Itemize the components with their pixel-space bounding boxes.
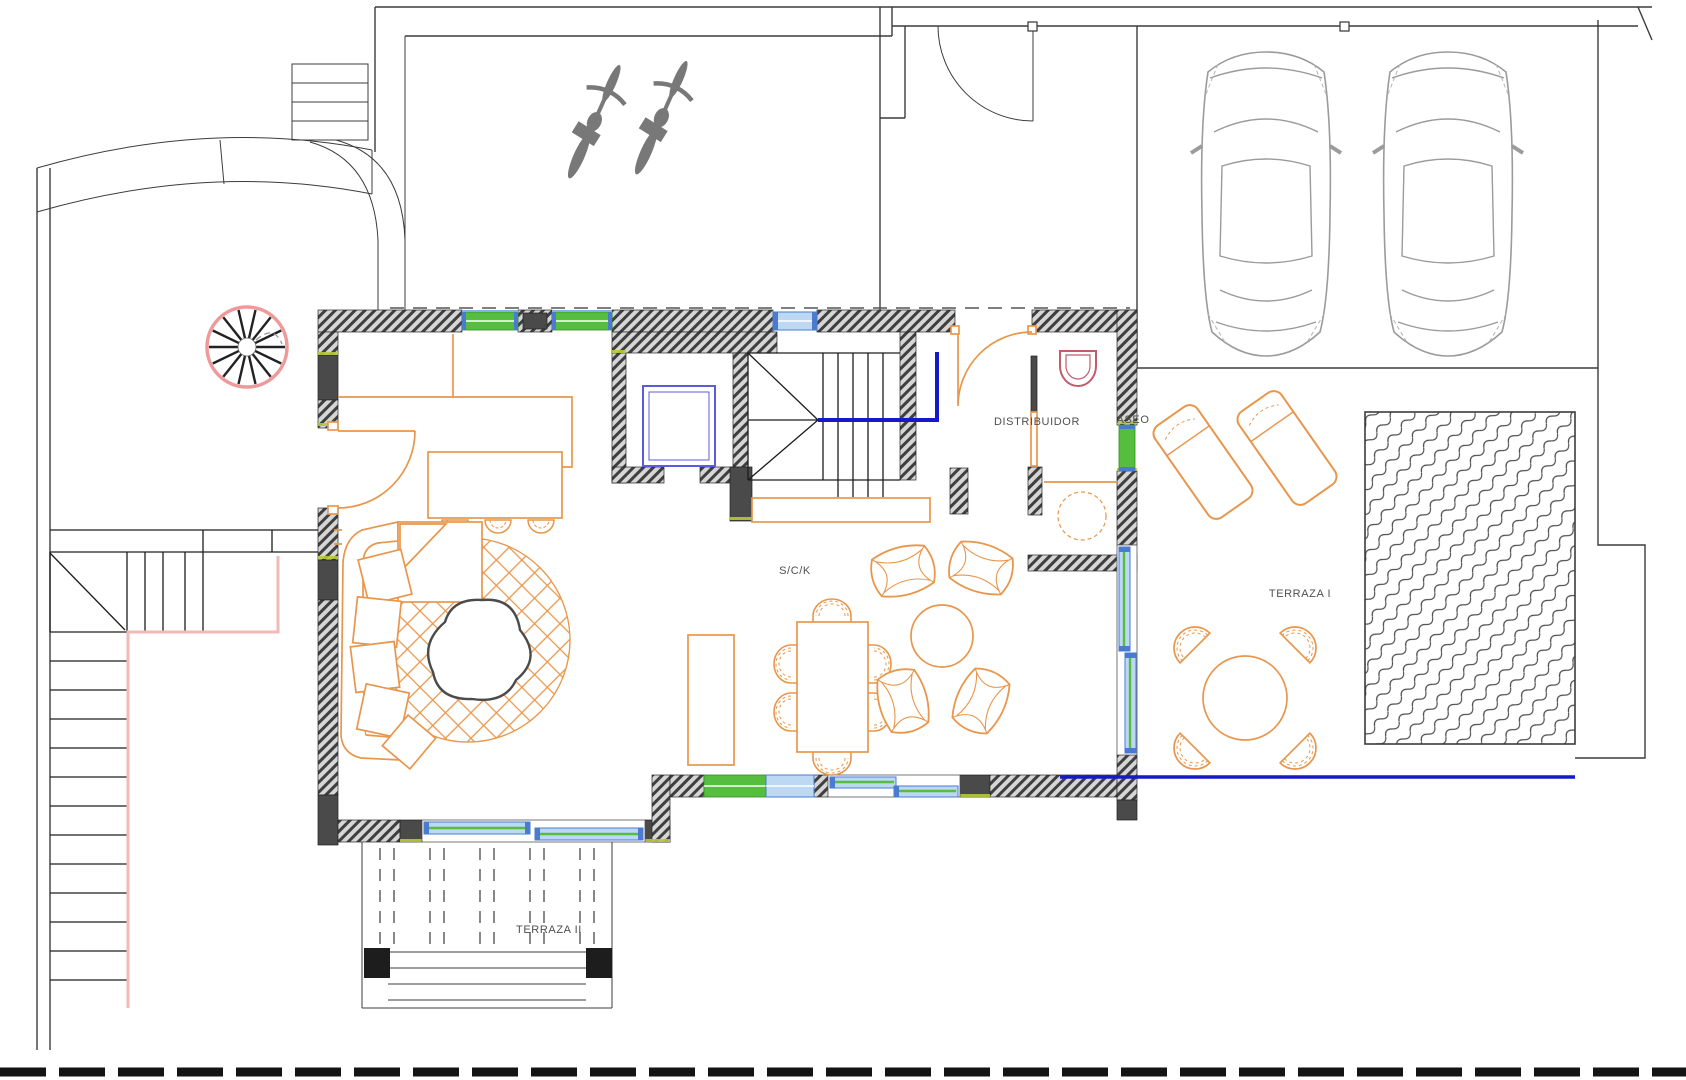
car-icon <box>1373 52 1523 356</box>
terrace-chair-icon <box>1165 618 1210 663</box>
dining-set <box>774 599 891 775</box>
armchair-icon <box>946 662 1016 739</box>
terrace-chair-icon <box>1165 733 1210 778</box>
basin-icon <box>1058 492 1106 540</box>
terrace-table <box>1203 656 1287 740</box>
exterior-staircase <box>50 530 318 1008</box>
bicycle-icon <box>617 52 706 182</box>
stool-icon <box>528 520 554 533</box>
gate-hinge <box>1340 22 1349 31</box>
patio <box>390 52 1130 308</box>
kitchen <box>338 334 572 533</box>
living-room <box>341 522 734 769</box>
chair-icon <box>813 750 851 775</box>
sofa-cushion <box>353 597 402 647</box>
terraza2-label: TERRAZA II <box>516 924 582 936</box>
kitchen-door <box>338 431 415 508</box>
window-green <box>1119 425 1135 471</box>
sofa-cushion <box>350 641 399 692</box>
chair-icon <box>813 599 851 624</box>
spiral-staircase-icon <box>207 307 287 387</box>
distribuidor-label: DISTRIBUIDOR <box>994 416 1080 428</box>
terrace-chair-icon <box>1280 618 1325 663</box>
entry-path <box>37 36 405 310</box>
elevator-shaft <box>643 386 715 466</box>
entry-door <box>958 332 1032 406</box>
garage <box>1191 52 1523 356</box>
lounge-set <box>866 535 1018 739</box>
floor-plan-drawing: DISTRIBUIDOR ASEO S/C/K TERRAZA I TERRAZ… <box>0 0 1686 1080</box>
bathroom <box>1044 351 1117 540</box>
gate-hinge <box>1028 22 1037 31</box>
bicycle-icon <box>550 56 639 186</box>
dining-table <box>797 622 868 752</box>
stair-cabinet <box>752 498 930 522</box>
stool-icon <box>485 520 511 533</box>
armchair-icon <box>866 540 939 603</box>
round-table <box>911 605 973 667</box>
armchair-icon <box>944 535 1019 600</box>
swimming-pool <box>1365 412 1575 744</box>
terraza1-label: TERRAZA I <box>1269 588 1331 600</box>
chair-icon <box>774 645 799 683</box>
aseo-label: ASEO <box>1117 414 1150 426</box>
section-line-blue <box>818 352 937 420</box>
sck-label: S/C/K <box>779 565 811 577</box>
terrace-post <box>364 948 390 978</box>
aseo-door-leaf <box>1031 356 1037 412</box>
car-icon <box>1191 52 1341 356</box>
terrace-post <box>586 948 612 978</box>
sideboard <box>688 635 734 765</box>
chair-icon <box>774 693 799 731</box>
terrace-chair-icon <box>1280 733 1325 778</box>
floor-plan: DISTRIBUIDOR ASEO S/C/K TERRAZA I TERRAZ… <box>0 0 1686 1080</box>
kitchen-island <box>428 452 562 518</box>
